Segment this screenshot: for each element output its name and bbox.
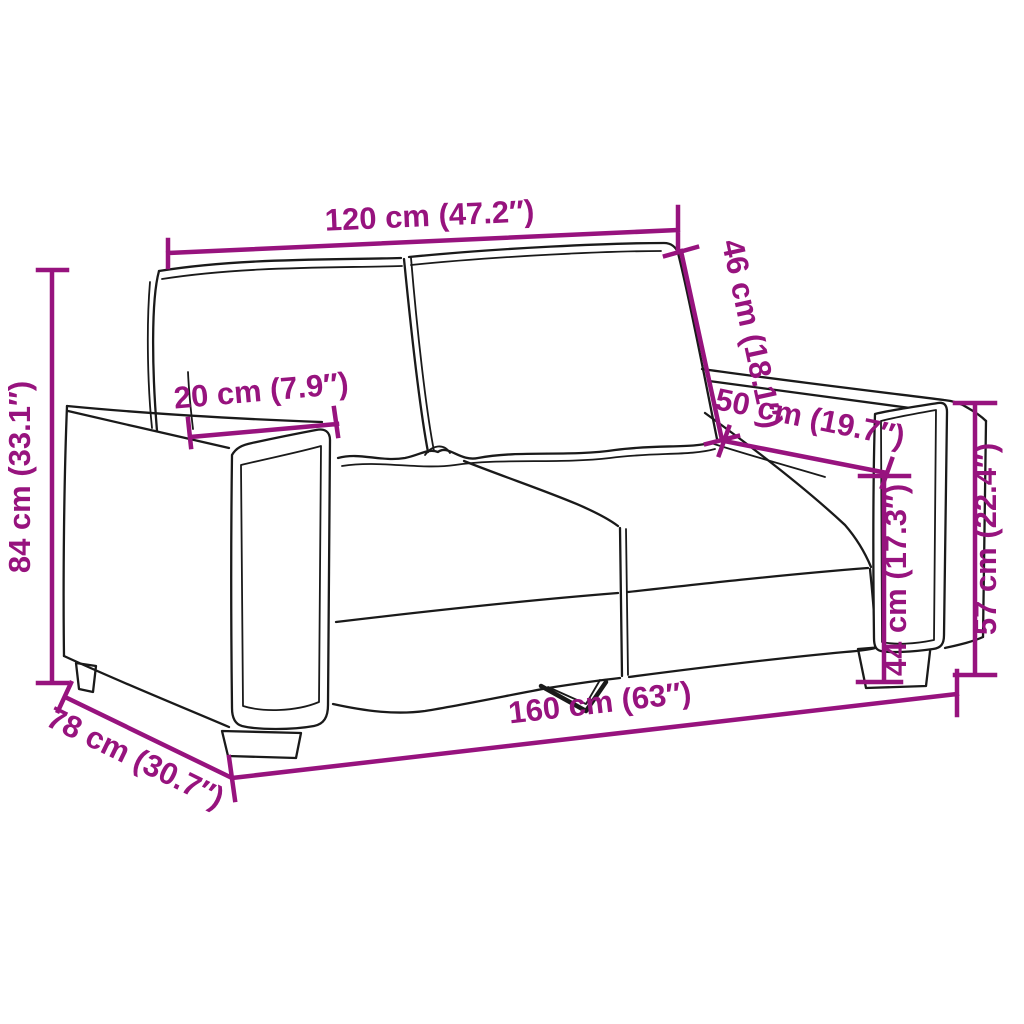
dimension-label: 20 cm (7.9″) bbox=[172, 365, 349, 415]
dimension-label: 78 cm (30.7″) bbox=[41, 700, 229, 816]
sofa-seat bbox=[333, 461, 876, 713]
sofa-line-art bbox=[64, 243, 986, 758]
sofa-leg-back-left bbox=[76, 663, 96, 692]
dimension-total-height: 84 cm (33.1″) bbox=[2, 270, 67, 683]
sofa-leg-front-left bbox=[222, 731, 301, 758]
dimension-label: 57 cm (22.4″) bbox=[968, 443, 1003, 635]
diagram-canvas: 120 cm (47.2″) 46 cm (18.1″) 20 cm (7.9″… bbox=[0, 0, 1024, 1024]
dimension-label: 120 cm (47.2″) bbox=[324, 193, 535, 237]
dimension-armrest-height: 57 cm (22.4″) bbox=[955, 403, 1003, 675]
sofa-dimension-diagram: 120 cm (47.2″) 46 cm (18.1″) 20 cm (7.9″… bbox=[0, 0, 1024, 1024]
sofa-armrest-left bbox=[64, 406, 330, 729]
dimension-label: 84 cm (33.1″) bbox=[2, 381, 37, 573]
dimension-label: 160 cm (63″) bbox=[507, 675, 694, 731]
dimension-armrest-length: 50 cm (19.7″) bbox=[712, 381, 907, 487]
dimension-label: 44 cm (17.3″) bbox=[878, 484, 913, 676]
dimension-total-width: 160 cm (63″) bbox=[229, 671, 957, 800]
dimension-annotations: 120 cm (47.2″) 46 cm (18.1″) 20 cm (7.9″… bbox=[2, 193, 1003, 815]
dimension-depth: 78 cm (30.7″) bbox=[41, 683, 232, 815]
